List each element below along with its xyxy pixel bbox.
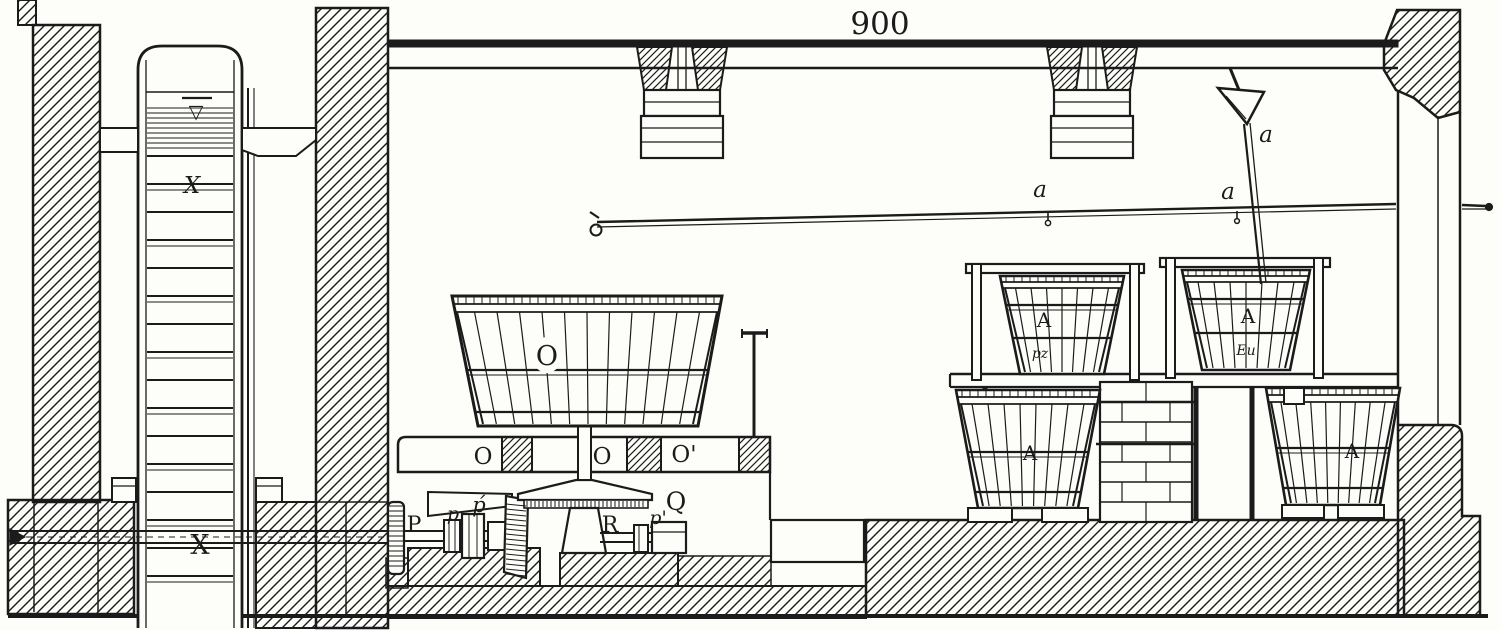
- drum-p-accent: [462, 514, 484, 558]
- rod-outer-tip: [1485, 203, 1492, 210]
- right-raised-floor: [866, 520, 1404, 616]
- frame-post: [972, 264, 981, 380]
- vertical-spindle: [578, 424, 591, 480]
- left-foundation: [8, 500, 134, 614]
- label-tub-upper-left: A: [1036, 308, 1052, 332]
- label-bench-left: O: [474, 444, 493, 470]
- label-tub-upper-left-small: pz: [1032, 346, 1049, 362]
- label-bench-center: O: [593, 444, 612, 470]
- disc-coupling: [488, 522, 506, 550]
- label-vat-O: O: [536, 341, 558, 372]
- label-p-prime: p': [649, 507, 666, 529]
- label-Q: Q: [666, 487, 687, 516]
- rail-spigot: [1284, 388, 1304, 404]
- bearing-pedestal-left: [112, 478, 136, 502]
- wall-gear-P: [388, 502, 404, 574]
- label-R: R: [602, 513, 620, 538]
- label-p: p: [447, 503, 459, 525]
- engraving-figure: 900 ▽ X X O O O O' P p ṕ R p' Q A pz A E…: [0, 0, 1500, 630]
- frame-post: [1166, 258, 1175, 378]
- label-bench-right: O': [671, 442, 696, 468]
- label-P: P: [407, 513, 422, 538]
- label-tub-lower-left: A: [1022, 441, 1038, 465]
- label-wheel-middle: X: [182, 173, 202, 199]
- label-wheel-top: ▽: [189, 101, 204, 123]
- left-launder: [100, 128, 138, 152]
- engraving-page: 900 ▽ X X O O O O' P p ṕ R p' Q A pz A E…: [0, 0, 1500, 630]
- label-tub-lower-right: A: [1344, 439, 1360, 463]
- brick-pier: [1096, 382, 1196, 522]
- label-rod-a-funnel: a: [1259, 122, 1273, 148]
- step-bearing-R: [562, 508, 606, 553]
- label-rod-a-mid: a: [1033, 177, 1047, 203]
- floor-step: [771, 520, 864, 562]
- label-rod-a-near-pipe: a: [1221, 179, 1235, 205]
- label-wheel-bottom: X: [190, 530, 210, 561]
- label-p-accent: ṕ: [472, 493, 486, 517]
- center-pillar: [316, 8, 388, 628]
- coupling-p-prime: [634, 525, 648, 552]
- label-tub-upper-right-small: Eu: [1235, 343, 1255, 359]
- label-dimension-900: 900: [850, 6, 909, 42]
- machinery-ground: [388, 586, 866, 618]
- frame-bar-right: [1160, 258, 1330, 267]
- frame-post: [1130, 264, 1139, 380]
- frame-post: [1314, 258, 1323, 378]
- left-wall-column: [33, 25, 100, 502]
- foundation-block-center: [560, 553, 678, 586]
- frame-bar-left: [966, 264, 1144, 273]
- foundation-block-right: [678, 556, 771, 586]
- label-tub-upper-right: A: [1240, 304, 1256, 328]
- bearing-pedestal-right: [256, 478, 282, 502]
- pit-masonry: [256, 502, 316, 628]
